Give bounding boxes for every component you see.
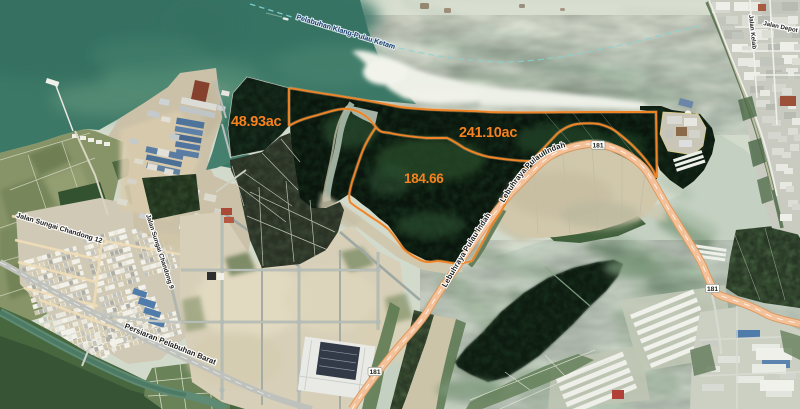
svg-text:48.93ac: 48.93ac [231,114,282,130]
svg-text:184.66: 184.66 [404,171,444,186]
svg-text:181: 181 [592,142,603,149]
svg-text:181: 181 [707,286,718,293]
svg-text:181: 181 [369,369,380,376]
svg-text:241.10ac: 241.10ac [459,125,517,141]
